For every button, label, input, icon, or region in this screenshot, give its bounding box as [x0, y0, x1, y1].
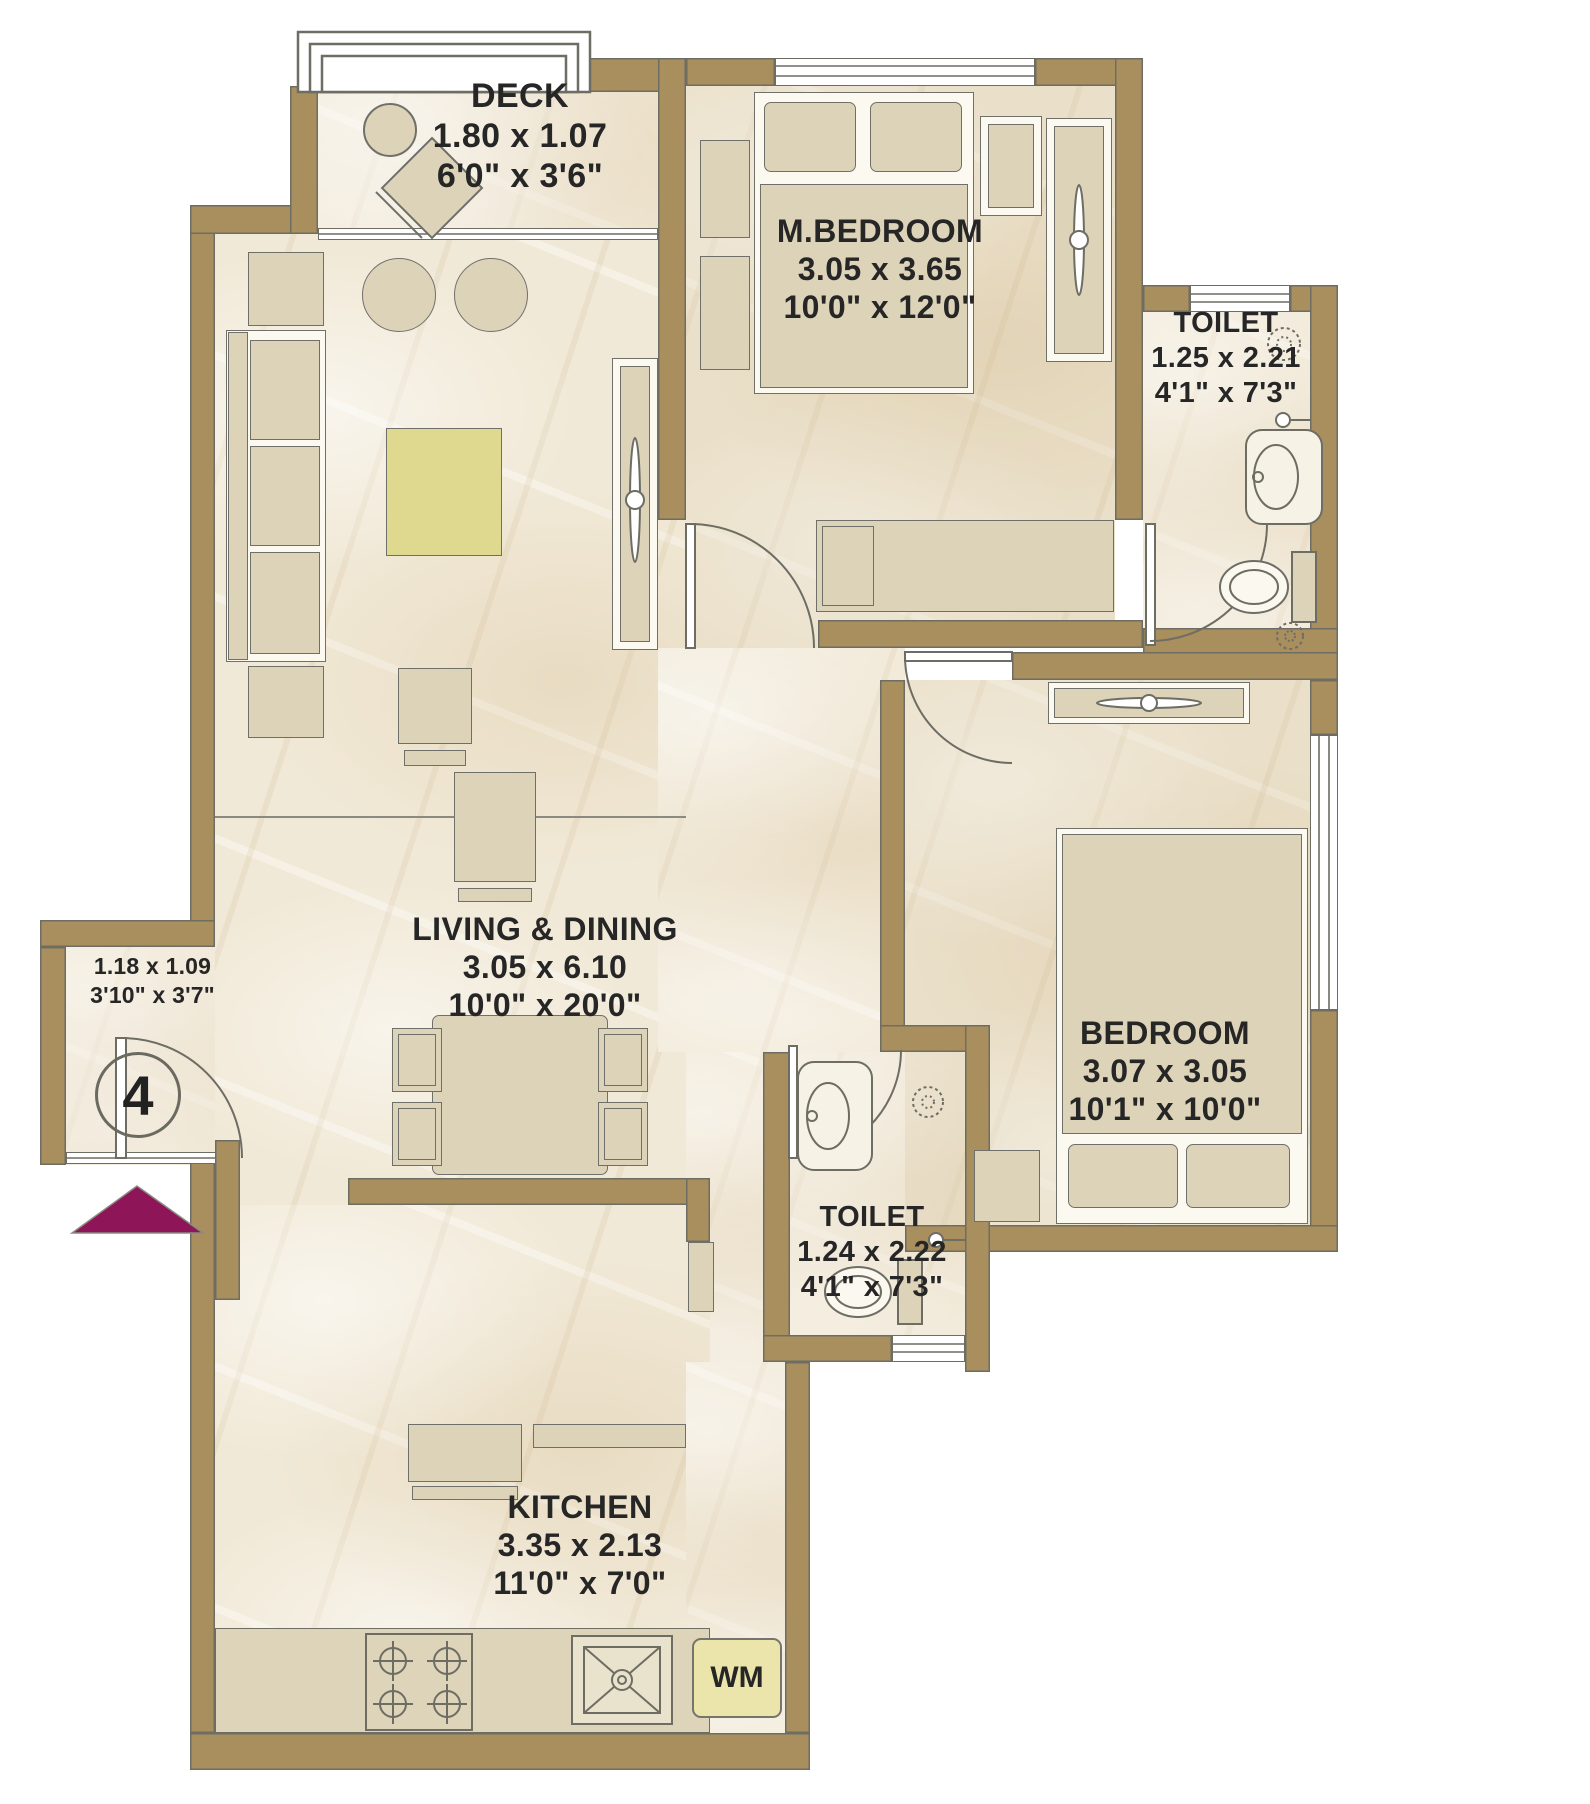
living-sofa-cushion-2	[250, 446, 320, 546]
living-tv-panel	[620, 366, 650, 642]
wall-mbedroom-east	[1115, 58, 1143, 520]
chair-seat	[604, 1034, 642, 1086]
unit-number: 4	[122, 1063, 153, 1128]
wall-foyer-north	[40, 920, 215, 947]
living-square-table-shelf	[404, 750, 466, 766]
kitchen-counter-south	[215, 1628, 710, 1733]
wall-toilet-common-south	[763, 1335, 892, 1362]
living-dining-label: LIVING & DINING 3.05 x 6.10 10'0" x 20'0…	[370, 910, 720, 1024]
room-name: BEDROOM	[1000, 1014, 1330, 1052]
mbed-wardrobe-door	[1054, 126, 1104, 354]
wall-bedroom-west	[880, 680, 905, 1052]
wall-bedroom-north	[1012, 652, 1338, 680]
wall-utility-east	[785, 1362, 810, 1733]
dining-table	[432, 1015, 608, 1175]
mbed-dresser-section	[822, 526, 874, 606]
room-dim-m: 3.05 x 6.10	[370, 948, 720, 986]
living-side-table-bottom	[248, 666, 324, 738]
deck-label: DECK 1.80 x 1.07 6'0" x 3'6"	[400, 76, 640, 196]
unit-number-badge: 4	[95, 1052, 181, 1138]
room-dim-ft: 10'0" x 20'0"	[370, 986, 720, 1024]
living-sofa-back	[228, 332, 248, 660]
room-dim-ft: 4'1" x 7'3"	[1138, 376, 1314, 411]
bedroom-label: BEDROOM 3.07 x 3.05 10'1" x 10'0"	[1000, 1014, 1330, 1128]
wall-mbedroom-west	[658, 58, 686, 520]
kitchen-label: KITCHEN 3.35 x 2.13 11'0" x 7'0"	[420, 1488, 740, 1602]
washing-machine-label: WM	[710, 1661, 763, 1695]
entrance-label: 1.18 x 1.09 3'10" x 3'7"	[70, 952, 235, 1010]
toilet-common-vent	[892, 1335, 965, 1362]
wall-kitchen-east-stub	[686, 1178, 710, 1242]
room-dim-ft: 11'0" x 7'0"	[420, 1564, 740, 1602]
room-dim-ft: 6'0" x 3'6"	[400, 156, 640, 196]
mbed-pillow-left	[764, 102, 856, 172]
living-pouf-1	[362, 258, 436, 332]
room-dim-m: 1.80 x 1.07	[400, 116, 640, 156]
wall-bedroom-east-top	[1310, 680, 1338, 735]
entry-arrow-icon	[72, 1186, 203, 1233]
dining-chair-1	[392, 1028, 442, 1092]
room-dim-m: 3.35 x 2.13	[420, 1526, 740, 1564]
room-dim-m: 3.05 x 3.65	[700, 250, 1060, 288]
toilet-master-label: TOILET 1.25 x 2.21 4'1" x 7'3"	[1138, 306, 1314, 411]
room-dim-m: 1.25 x 2.21	[1138, 341, 1314, 376]
washing-machine: WM	[692, 1638, 782, 1718]
living-sofa-cushion-3	[250, 552, 320, 654]
wall-toilet-master-south	[1143, 628, 1338, 655]
room-dim-ft: 10'0" x 12'0"	[700, 288, 1060, 326]
bedroom-pillow-left	[1068, 1144, 1178, 1208]
living-step-line	[215, 816, 686, 818]
wall-toilet-master-east	[1310, 285, 1338, 655]
living-cabinet-shelf	[458, 888, 532, 902]
kitchen-counter-north	[533, 1424, 686, 1448]
dining-chair-2	[392, 1102, 442, 1166]
chair-seat	[398, 1108, 436, 1160]
living-sofa-cushion-1	[250, 340, 320, 440]
entry-threshold	[66, 1152, 216, 1164]
living-cabinet	[454, 772, 536, 882]
living-coffee-table	[386, 428, 502, 556]
wall-living-west	[190, 205, 215, 947]
wall-kitchen-north	[348, 1178, 710, 1205]
mbed-nook-shelf	[988, 124, 1034, 208]
wall-south	[190, 1733, 810, 1770]
room-dim-ft: 10'1" x 10'0"	[1000, 1090, 1330, 1128]
room-name: TOILET	[784, 1200, 960, 1235]
floor-plan: WM	[0, 0, 1590, 1804]
room-dim-m: 1.24 x 2.22	[784, 1235, 960, 1270]
deck-slider	[318, 228, 658, 240]
mbedroom-window	[775, 58, 1035, 86]
living-pouf-2	[454, 258, 528, 332]
wall-mbedroom-north-left	[686, 58, 775, 86]
entrance-dim-ft: 3'10" x 3'7"	[70, 981, 235, 1010]
dining-chair-3	[598, 1028, 648, 1092]
corridor-cabinet	[688, 1242, 714, 1312]
room-name: M.BEDROOM	[700, 212, 1060, 250]
room-name: LIVING & DINING	[370, 910, 720, 948]
dining-chair-4	[598, 1102, 648, 1166]
chair-seat	[604, 1108, 642, 1160]
room-dim-ft: 4'1" x 7'3"	[784, 1270, 960, 1305]
wall-foyer-column	[215, 1140, 240, 1300]
bedroom-wardrobe-door	[1054, 688, 1244, 718]
kitchen-cabinet	[408, 1424, 522, 1482]
bedroom-side-table	[974, 1150, 1040, 1222]
room-dim-m: 3.07 x 3.05	[1000, 1052, 1330, 1090]
bedroom-window	[1310, 735, 1338, 1010]
living-side-table-top	[248, 252, 324, 326]
bedroom-pillow-right	[1186, 1144, 1290, 1208]
room-name: TOILET	[1138, 306, 1314, 341]
toilet-common-label: TOILET 1.24 x 2.22 4'1" x 7'3"	[784, 1200, 960, 1305]
room-name: DECK	[400, 76, 640, 116]
living-square-table	[398, 668, 472, 744]
wall-deck-west	[290, 86, 318, 234]
wall-kitchen-west	[190, 1160, 215, 1733]
entrance-dim-m: 1.18 x 1.09	[70, 952, 235, 981]
wall-foyer-west	[40, 947, 66, 1165]
master-bedroom-label: M.BEDROOM 3.05 x 3.65 10'0" x 12'0"	[700, 212, 1060, 326]
mbed-pillow-right	[870, 102, 962, 172]
chair-seat	[398, 1034, 436, 1086]
wall-mbedroom-south	[818, 620, 1143, 648]
room-name: KITCHEN	[420, 1488, 740, 1526]
bedroom-door-leaf	[905, 652, 1012, 661]
